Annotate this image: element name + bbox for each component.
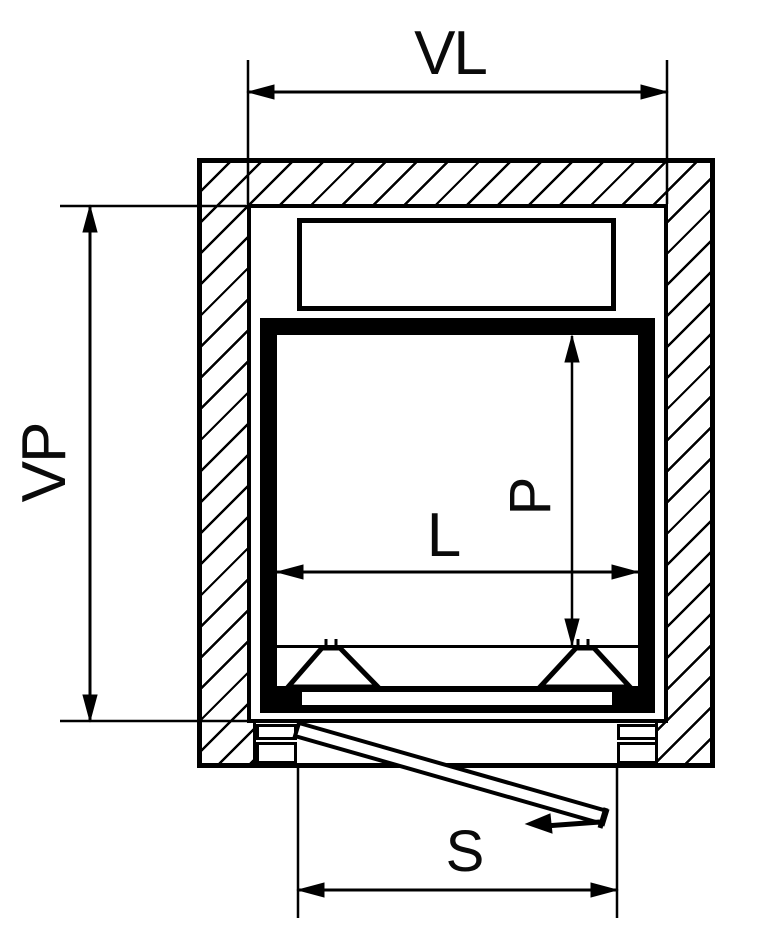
- label-car-depth: P: [502, 479, 560, 516]
- dim-vp: [60, 206, 247, 721]
- label-shaft-depth: VP: [14, 424, 76, 503]
- dim-p: [565, 336, 579, 645]
- label-car-width: L: [427, 505, 459, 567]
- guide-shoe-right: [540, 639, 630, 687]
- door-leaf: [295, 723, 607, 824]
- linework-overlay: [0, 0, 768, 925]
- shaft-plan-drawing: VL VP L P S: [0, 0, 768, 925]
- guide-shoe-left: [288, 639, 378, 687]
- label-shaft-width: VL: [414, 23, 486, 85]
- label-door-width: S: [446, 823, 483, 881]
